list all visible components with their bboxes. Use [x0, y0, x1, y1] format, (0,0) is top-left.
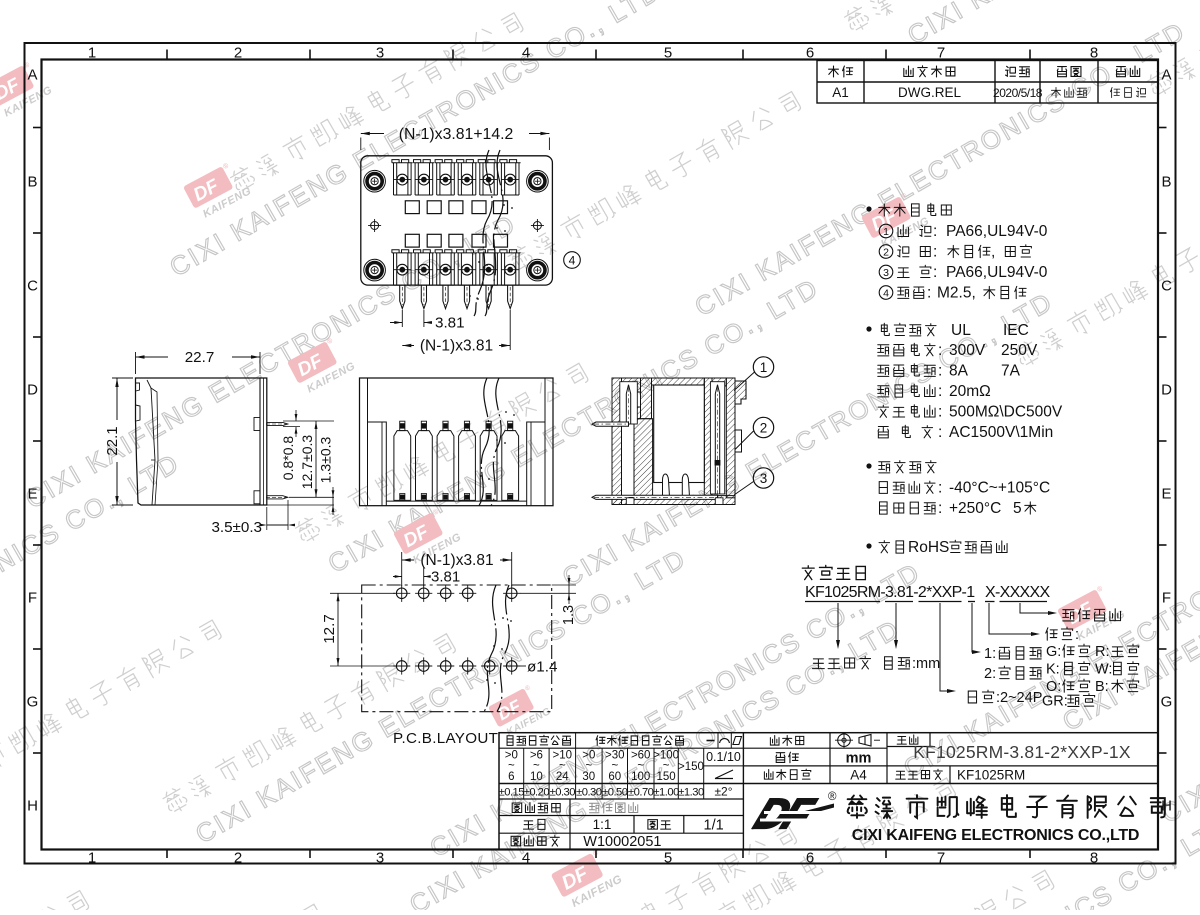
svg-text:±0.30: ±0.30: [576, 787, 602, 799]
svg-text:KF1025RM: KF1025RM: [957, 768, 1025, 783]
svg-text:>150: >150: [678, 761, 704, 773]
svg-text:100: 100: [631, 771, 650, 783]
svg-text::: :: [938, 404, 942, 421]
svg-text:IEC: IEC: [1003, 322, 1029, 339]
svg-text:150: 150: [657, 771, 676, 783]
svg-text:W:: W:: [1095, 662, 1112, 678]
svg-text:(N-1)x3.81: (N-1)x3.81: [420, 552, 493, 569]
svg-text:6: 6: [806, 45, 814, 62]
svg-text:AC1500V\1Min: AC1500V\1Min: [949, 424, 1053, 441]
svg-text:1.3: 1.3: [561, 605, 577, 625]
svg-text:1.3±0.3: 1.3±0.3: [318, 436, 334, 483]
svg-text:8A: 8A: [949, 363, 969, 380]
svg-text:3.81: 3.81: [435, 315, 465, 332]
svg-text:F: F: [1162, 590, 1171, 607]
svg-text:±0.30: ±0.30: [550, 787, 576, 799]
svg-text:1/1: 1/1: [704, 818, 724, 834]
svg-text:D: D: [1161, 382, 1172, 399]
svg-text:W10002051: W10002051: [583, 834, 661, 850]
svg-text:22.1: 22.1: [104, 426, 121, 455]
svg-text:+250°C: +250°C: [949, 500, 1001, 517]
svg-text:4: 4: [883, 287, 889, 299]
svg-text:1: 1: [883, 226, 889, 238]
svg-text:mm: mm: [846, 751, 872, 767]
svg-text:10: 10: [530, 771, 543, 783]
svg-text:CIXI KAIFENG ELECTRONICS CO.,L: CIXI KAIFENG ELECTRONICS CO.,LTD: [852, 827, 1140, 844]
svg-text:7A: 7A: [1001, 363, 1021, 380]
svg-text:8: 8: [1090, 45, 1098, 62]
svg-text::: :: [933, 264, 937, 281]
svg-text:B: B: [27, 174, 37, 191]
svg-text::: :: [1075, 627, 1079, 643]
svg-text:RoHS: RoHS: [908, 539, 949, 556]
svg-text:±1.30: ±1.30: [678, 787, 704, 799]
svg-text:H: H: [1161, 798, 1172, 815]
svg-text:1:1: 1:1: [593, 817, 612, 832]
svg-text:3.81: 3.81: [431, 569, 460, 586]
svg-text:5: 5: [1013, 500, 1022, 517]
svg-text:7: 7: [937, 850, 945, 867]
svg-text:A: A: [27, 67, 37, 84]
svg-text:12.7: 12.7: [321, 614, 338, 644]
svg-text:6: 6: [806, 850, 814, 867]
svg-text:C: C: [27, 278, 38, 295]
svg-text::mm: :mm: [912, 656, 940, 672]
svg-text:PA66,UL94V-0: PA66,UL94V-0: [946, 264, 1048, 281]
svg-text:D: D: [27, 382, 38, 399]
svg-text:,: ,: [991, 244, 995, 261]
svg-text:2: 2: [883, 246, 889, 258]
svg-text:E: E: [27, 486, 37, 503]
svg-text:M2.5,: M2.5,: [937, 285, 976, 302]
svg-text::: :: [938, 342, 942, 359]
svg-text:2:: 2:: [984, 666, 996, 682]
svg-text:1: 1: [88, 850, 96, 867]
svg-text:R:: R:: [1095, 644, 1110, 660]
svg-text:5: 5: [664, 45, 672, 62]
svg-text:3: 3: [376, 850, 384, 867]
svg-text:KF1025RM-3.81-2*XXP-1X: KF1025RM-3.81-2*XXP-1X: [913, 742, 1131, 762]
svg-text:300V: 300V: [949, 342, 986, 359]
svg-text:A1: A1: [832, 85, 849, 100]
svg-text::: :: [927, 285, 931, 302]
svg-text:1:: 1:: [984, 646, 996, 662]
svg-text:1: 1: [88, 45, 96, 62]
svg-text:0.8*0.8: 0.8*0.8: [280, 436, 296, 481]
svg-text:±0.20: ±0.20: [524, 787, 550, 799]
svg-text:G:: G:: [1046, 644, 1061, 660]
svg-text:8: 8: [1090, 850, 1098, 867]
svg-text:22.7: 22.7: [185, 349, 215, 366]
svg-text::: :: [938, 424, 942, 441]
svg-text::: :: [933, 244, 937, 261]
svg-text::2~24P: :2~24P: [996, 690, 1042, 706]
svg-text:24: 24: [556, 771, 569, 783]
svg-text:±0.15: ±0.15: [499, 787, 525, 799]
svg-text:DWG.REL: DWG.REL: [898, 85, 961, 100]
svg-text:3: 3: [376, 45, 384, 62]
svg-text:500MΩ\DC500V: 500MΩ\DC500V: [949, 404, 1063, 421]
svg-text:®: ®: [828, 791, 837, 803]
svg-text:3: 3: [883, 267, 889, 279]
svg-text:250V: 250V: [1001, 342, 1038, 359]
svg-text:20mΩ: 20mΩ: [949, 383, 991, 400]
svg-text:F: F: [28, 590, 37, 607]
svg-text:B: B: [1161, 174, 1171, 191]
svg-text:(N-1)x3.81: (N-1)x3.81: [420, 338, 493, 355]
svg-text:±2°: ±2°: [714, 785, 732, 799]
svg-text::: :: [933, 223, 937, 240]
svg-text:0.1/10: 0.1/10: [706, 750, 741, 764]
svg-text::: :: [938, 500, 942, 517]
svg-text:(N-1)x3.81+14.2: (N-1)x3.81+14.2: [399, 126, 514, 143]
svg-text:60: 60: [608, 771, 621, 783]
svg-text:H: H: [27, 798, 38, 815]
svg-text:K:: K:: [1046, 662, 1060, 678]
svg-text:B:: B:: [1095, 679, 1109, 695]
svg-text:UL: UL: [951, 322, 971, 339]
svg-text:12.7±0.3: 12.7±0.3: [299, 435, 315, 490]
svg-text:3.5±0.3: 3.5±0.3: [211, 519, 262, 536]
svg-text:A4: A4: [850, 768, 867, 783]
svg-text:G: G: [27, 694, 39, 711]
svg-text:GR:: GR:: [1042, 694, 1068, 710]
svg-text::: :: [938, 363, 942, 380]
svg-text:4: 4: [522, 850, 530, 867]
svg-text:PA66,UL94V-0: PA66,UL94V-0: [946, 223, 1048, 240]
svg-text:-40°C~+105°C: -40°C~+105°C: [949, 480, 1050, 497]
svg-text:3: 3: [760, 471, 768, 486]
svg-text:1: 1: [760, 360, 768, 375]
svg-text::: :: [938, 480, 942, 497]
svg-text:±0.50: ±0.50: [602, 787, 628, 799]
svg-text:4: 4: [569, 254, 576, 268]
svg-text:±1.00: ±1.00: [653, 787, 679, 799]
svg-text:ø1.4: ø1.4: [527, 659, 557, 676]
svg-text:P.C.B.LAYOUT: P.C.B.LAYOUT: [393, 730, 498, 747]
svg-text:7: 7: [937, 45, 945, 62]
svg-text:G: G: [1161, 694, 1173, 711]
svg-text:2: 2: [234, 45, 242, 62]
svg-text:30: 30: [582, 771, 595, 783]
svg-text::: :: [938, 383, 942, 400]
svg-text:±0.70: ±0.70: [628, 787, 654, 799]
svg-text:5: 5: [664, 850, 672, 867]
svg-text:4: 4: [522, 45, 530, 62]
svg-text:2: 2: [234, 850, 242, 867]
svg-text:6: 6: [508, 771, 514, 783]
svg-text:KF1025RM-3.81-2*XXP-1: KF1025RM-3.81-2*XXP-1: [805, 584, 975, 601]
svg-text:E: E: [1161, 486, 1171, 503]
svg-text:C: C: [1161, 278, 1172, 295]
svg-text:2020/5/18: 2020/5/18: [993, 86, 1043, 100]
svg-text:A: A: [1161, 67, 1171, 84]
svg-text:X-XXXXX: X-XXXXX: [985, 584, 1050, 601]
svg-text:2: 2: [760, 421, 768, 436]
